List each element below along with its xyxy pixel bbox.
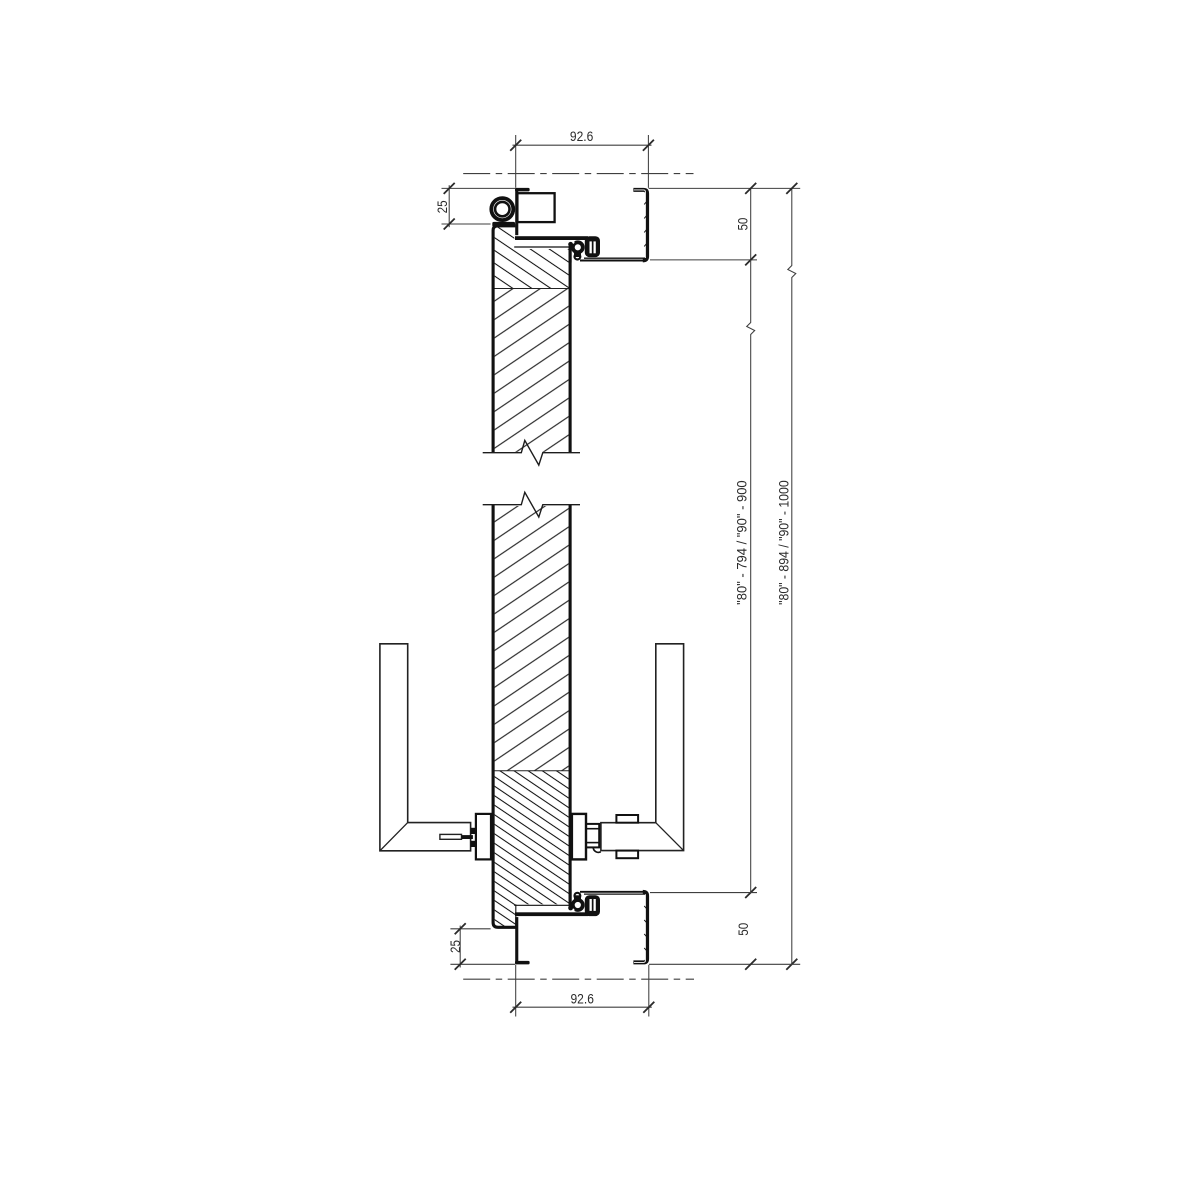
svg-text:92.6: 92.6 [570,128,594,144]
svg-text:"80" - 794 / "90" - 900: "80" - 794 / "90" - 900 [734,480,750,605]
svg-text:50: 50 [735,217,751,230]
svg-text:50: 50 [735,923,751,936]
svg-text:25: 25 [447,940,463,953]
svg-text:"80" - 894 / "90" - 1000: "80" - 894 / "90" - 1000 [775,480,791,605]
svg-text:92.6: 92.6 [571,990,595,1006]
svg-text:25: 25 [434,200,450,213]
